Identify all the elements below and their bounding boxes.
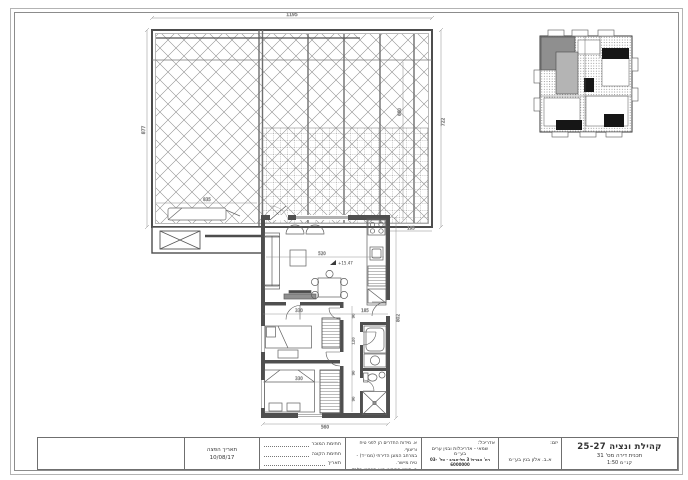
dim-terrace-width: 1195 xyxy=(286,12,298,18)
dim-bed2-width: 330 xyxy=(295,376,303,381)
dim-corr-d: 90 xyxy=(351,396,356,401)
note-line-1: א. מידות החדרים הן לפני טיח וריצוף. xyxy=(350,441,417,454)
dim-corr-b: 120 xyxy=(351,337,356,345)
dim-bed1-width: 330 xyxy=(295,308,303,313)
architect-contact: רח' הברזל 3 תל-אביב · טל' 03-6000000 xyxy=(425,457,495,467)
architect-cell: אדריכל: שמאי - אדריכלות ובנין ערים בע״מ … xyxy=(421,438,498,469)
developer-name: א.ב. אלון בנין בע״מ xyxy=(502,457,558,467)
level-marker-icon: +15.47 xyxy=(330,260,353,266)
sofa xyxy=(265,233,280,289)
dining-table xyxy=(311,270,347,298)
wardrobe2 xyxy=(320,370,340,413)
architect-label: אדריכל: xyxy=(425,440,495,446)
level-value: +15.47 xyxy=(338,261,353,266)
dim-terrace-height-right: 722 xyxy=(441,118,447,127)
dim-corr-a: 90 xyxy=(351,313,356,318)
buyer-signature-line xyxy=(264,451,309,457)
dim-corr-c: 90 xyxy=(351,370,356,375)
apartment-plan: +15.47 xyxy=(260,206,390,418)
notes-cell: א. מידות החדרים הן לפני טיח וריצוף. במרח… xyxy=(345,438,421,469)
date-signature-line xyxy=(264,460,325,466)
dim-apartment-height: 802 xyxy=(396,314,401,322)
double-bed xyxy=(265,370,315,412)
date-signature-row: תאריך xyxy=(264,460,341,466)
dim-hall-width: 185 xyxy=(361,308,369,313)
seller-signature-row: חתימת המוכר xyxy=(264,441,341,447)
seller-signature-line xyxy=(264,441,309,447)
kitchen-sink xyxy=(370,247,383,260)
floor-plan-drawing: 1195 877 722 835 660 195 xyxy=(0,0,688,480)
drawing-title: תכנית דירה מס' 31 xyxy=(597,453,643,459)
note-line-3: ב. סימון הריהוט הוא סכמטי בלבד ולא מחייב… xyxy=(350,468,417,469)
coffee-table xyxy=(290,250,306,266)
dim-apartment-width: 560 xyxy=(321,425,329,430)
hand-sink xyxy=(379,372,385,378)
title-block: תאריך הפצה 10/08/17 חתימת המוכר חתימת הק… xyxy=(37,437,678,470)
issue-date-value: 10/08/17 xyxy=(210,455,235,461)
key-plan xyxy=(534,30,638,137)
bathroom-lower xyxy=(363,372,387,415)
issue-date-cell: תאריך הפצה 10/08/17 xyxy=(184,438,259,469)
dim-terrace-height-left: 877 xyxy=(141,126,147,135)
wardrobe1 xyxy=(322,318,340,348)
developer-label: יזם: xyxy=(502,440,558,446)
note-line-2: במרחב המוגן הדירתי (ממ״ד) - טיח מיישר. xyxy=(350,454,417,467)
terrace-ledge-strip xyxy=(152,227,262,253)
architect-name: שמאי - אדריכלות ובנין ערים בע״מ xyxy=(425,447,495,457)
buyer-signature-label: חתימת הקונה xyxy=(312,451,341,457)
shower xyxy=(363,392,387,415)
issue-date-label: תאריך הפצה xyxy=(207,447,237,453)
developer-cell: יזם: א.ב. אלון בנין בע״מ xyxy=(498,438,561,469)
kitchen-cabinet xyxy=(368,266,386,286)
scanned-floor-plan-sheet: 1195 877 722 835 660 195 xyxy=(0,0,688,480)
drawing-scale: קנ״מ 1:50 xyxy=(607,460,632,466)
bathtub xyxy=(364,326,386,353)
seller-signature-label: חתימת המוכר xyxy=(312,441,341,447)
kitchen xyxy=(367,219,386,305)
dim-terrace-inner-width: 835 xyxy=(203,197,211,202)
dim-terrace-right-offset: 195 xyxy=(407,226,415,231)
dim-living-width: 520 xyxy=(318,251,326,256)
toilet xyxy=(364,373,378,382)
project-title: קהילת ונציה 25-27 xyxy=(577,442,661,452)
dim-terrace-inner-height: 660 xyxy=(397,108,402,116)
signatures-cell: חתימת המוכר חתימת הקונה תאריך xyxy=(259,438,345,469)
buyer-signature-row: חתימת הקונה xyxy=(264,451,341,457)
project-title-cell: קהילת ונציה 25-27 תכנית דירה מס' 31 קנ״מ… xyxy=(561,438,677,469)
date-signature-label: תאריך xyxy=(328,460,341,466)
title-block-empty-cell xyxy=(38,438,184,469)
washing-machine xyxy=(364,354,386,367)
single-bed xyxy=(266,326,312,348)
bedroom1-bench xyxy=(278,350,298,358)
